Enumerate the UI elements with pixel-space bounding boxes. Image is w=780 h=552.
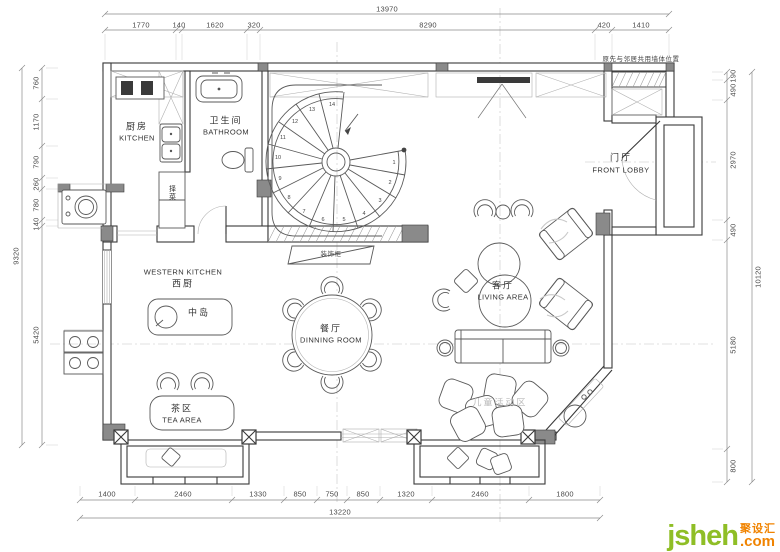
dim-top-seg-2: 1620 xyxy=(206,21,224,29)
tv-unit xyxy=(477,77,530,118)
dim-right-total: 10120 xyxy=(754,266,762,288)
stair-step-number: 7 xyxy=(302,209,305,215)
stair-step-number: 6 xyxy=(321,217,324,223)
dining-label-zh: 餐厅 xyxy=(320,325,342,334)
kitchen-fixtures xyxy=(116,77,185,228)
dim-left-seg-0: 760 xyxy=(32,76,40,89)
prep-cabinet-label: 择菜 xyxy=(169,185,176,201)
dim-right-seg-2: 2970 xyxy=(729,151,737,169)
kitchen-label-en: KITCHEN xyxy=(119,134,155,142)
living-label-zh: 客厅 xyxy=(492,282,514,291)
island-label: 中岛 xyxy=(188,309,210,318)
stair-step-number: 2 xyxy=(388,180,391,186)
dim-bottom-seg-5: 850 xyxy=(356,490,369,498)
tea-label-zh: 茶区 xyxy=(171,405,193,414)
dim-top-total: 13970 xyxy=(376,5,398,13)
floorplan-linework: 1 2 3 4 5 6 7 8 9 10 11 12 13 14 xyxy=(0,0,780,552)
stair-step-number: 10 xyxy=(275,155,281,161)
structural-columns xyxy=(58,63,674,444)
stair-step-number: 13 xyxy=(309,107,315,113)
jsheh-logo[interactable]: jsheh 聚设汇 .com xyxy=(667,524,776,549)
bathroom-label-en: BATHROOM xyxy=(203,128,249,136)
bathroom-fixtures xyxy=(196,73,253,234)
dim-bottom-seg-0: 1400 xyxy=(98,490,116,498)
western-kitchen-label-en: WESTERN KITCHEN xyxy=(144,268,223,276)
dim-top-seg-6: 1410 xyxy=(632,21,650,29)
dim-bottom-seg-1: 2460 xyxy=(174,490,192,498)
dining-label-en: DINNING ROOM xyxy=(300,336,362,344)
dim-bottom-seg-8: 1800 xyxy=(556,490,574,498)
dim-top-seg-3: 320 xyxy=(247,21,260,29)
dim-top-seg-1: 140 xyxy=(172,21,185,29)
stair-step-number: 14 xyxy=(329,102,335,108)
logo-brand-text: jsheh xyxy=(667,525,738,548)
dim-bottom-seg-7: 2460 xyxy=(471,490,489,498)
stair-step-number: 1 xyxy=(392,160,395,166)
walls xyxy=(103,63,702,440)
dimension-extension-lines xyxy=(46,34,723,496)
kitchen-label-zh: 厨房 xyxy=(126,123,148,132)
dim-top-seg-4: 8290 xyxy=(419,21,437,29)
dim-left-total: 9320 xyxy=(12,247,20,265)
dim-bottom-seg-3: 850 xyxy=(293,490,306,498)
stair-step-number: 4 xyxy=(362,211,365,217)
dim-bottom-seg-4: 750 xyxy=(325,490,338,498)
stair-step-number: 9 xyxy=(278,176,281,182)
dim-right-seg-4: 5180 xyxy=(729,336,737,354)
dim-bottom-total: 13220 xyxy=(329,508,351,516)
dim-right-seg-5: 800 xyxy=(729,459,737,472)
dim-right-seg-1: 490 xyxy=(729,83,737,96)
logo-tld-text: .com xyxy=(740,535,775,549)
stair-step-number: 12 xyxy=(292,119,298,125)
stair-step-number: 3 xyxy=(378,198,381,204)
front-lobby-label-en: FRONT LOBBY xyxy=(592,166,649,174)
dim-left-seg-2: 790 xyxy=(32,155,40,168)
dim-top-seg-5: 420 xyxy=(597,21,610,29)
dim-left-seg-1: 1170 xyxy=(32,114,40,131)
spiral-staircase: 1 2 3 4 5 6 7 8 9 10 11 12 13 14 xyxy=(266,85,406,236)
bathroom-label-zh: 卫生间 xyxy=(209,117,242,126)
floorplan-canvas: 1 2 3 4 5 6 7 8 9 10 11 12 13 14 xyxy=(0,0,780,552)
shared-wall-note: 原先与邻居共用墙体位置 xyxy=(603,57,680,64)
stair-step-number: 5 xyxy=(342,217,345,223)
cabinet-boxes xyxy=(111,71,662,442)
kids-cushions xyxy=(437,373,586,445)
western-kitchen-label-zh: 西厨 xyxy=(172,280,194,289)
dim-right-seg-0: 190 xyxy=(729,69,737,82)
dim-left-seg-3: 260 xyxy=(32,177,40,190)
living-label-en: LIVING AREA xyxy=(477,293,528,301)
cooktop-alcove xyxy=(64,330,103,374)
dim-left-seg-5: 140 xyxy=(32,217,40,230)
tea-label-en: TEA AREA xyxy=(162,416,201,424)
kids-area-label: 儿童活动区 xyxy=(472,399,527,408)
deco-cabinet-label: 装饰柜 xyxy=(321,252,342,259)
dim-right-seg-3: 490 xyxy=(729,223,737,236)
dim-top-seg-0: 1770 xyxy=(132,21,150,29)
dim-bottom-seg-6: 1320 xyxy=(397,490,415,498)
dim-bottom-seg-2: 1330 xyxy=(249,490,267,498)
front-lobby-label-zh: 门厅 xyxy=(610,154,632,163)
left-window xyxy=(103,250,111,304)
stair-step-number: 8 xyxy=(287,195,290,201)
dim-left-seg-6: 5420 xyxy=(32,326,40,344)
dim-left-seg-4: 780 xyxy=(32,198,40,211)
stair-step-number: 11 xyxy=(280,135,286,141)
